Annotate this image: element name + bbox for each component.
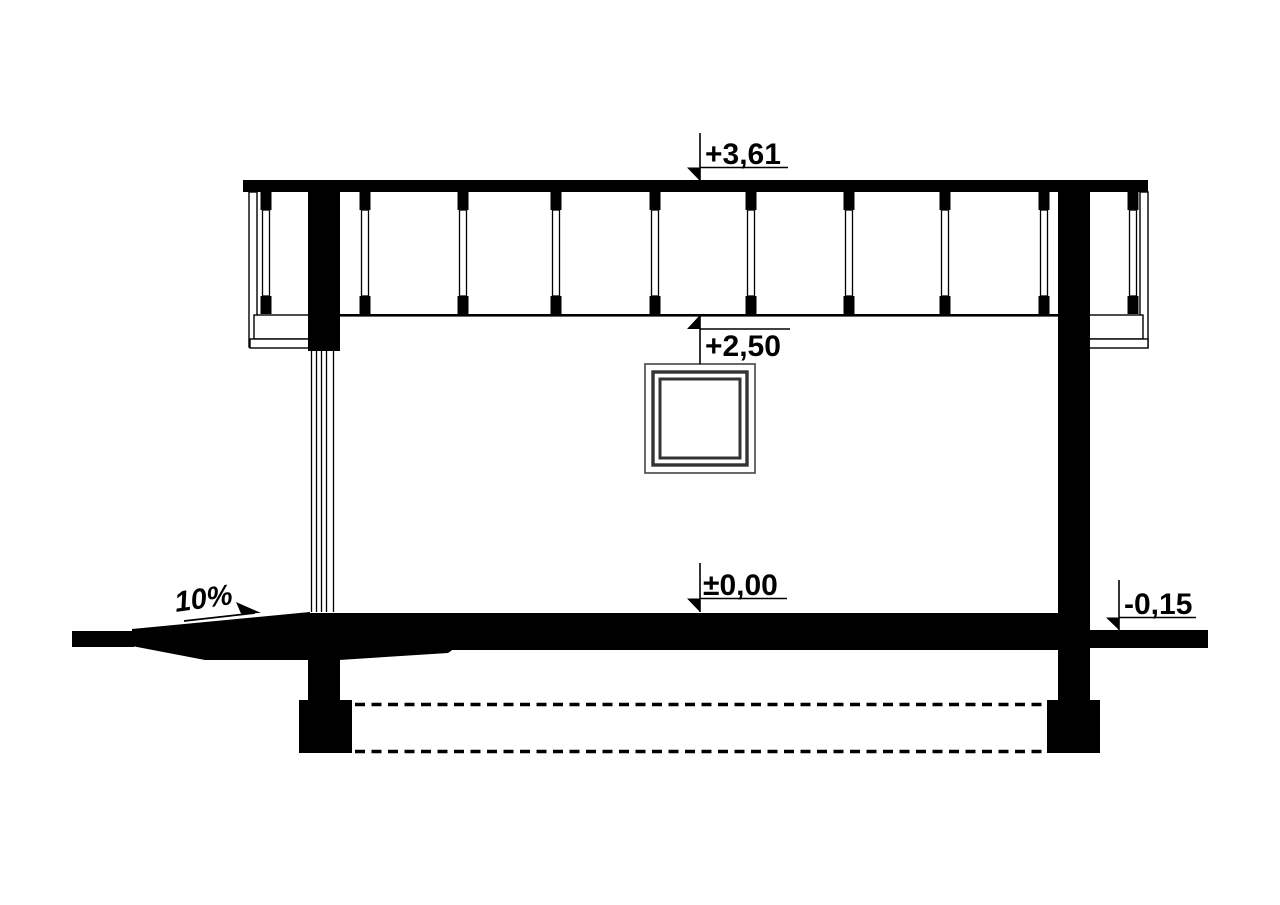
roof-slab — [243, 180, 1148, 192]
foundation-wall-left — [308, 648, 340, 702]
footing-right — [1047, 700, 1100, 753]
ground-level-label: -0,15 — [1124, 588, 1192, 621]
roof-level-label: +3,61 — [705, 138, 781, 171]
floor-slab — [305, 613, 1090, 650]
floor-level-label: ±0,00 — [703, 569, 778, 602]
soffit-left — [250, 315, 312, 348]
soffit-right — [1087, 315, 1148, 348]
ceiling-level-label: +2,50 — [705, 330, 781, 363]
window — [645, 364, 755, 473]
ground-right — [1090, 630, 1208, 648]
section-drawing: +3,61 +2,50 ±0,00 -0,15 10% — [0, 0, 1280, 905]
wall-left-lintel — [308, 190, 340, 351]
footing-left — [299, 700, 352, 753]
ground-left — [72, 631, 134, 647]
